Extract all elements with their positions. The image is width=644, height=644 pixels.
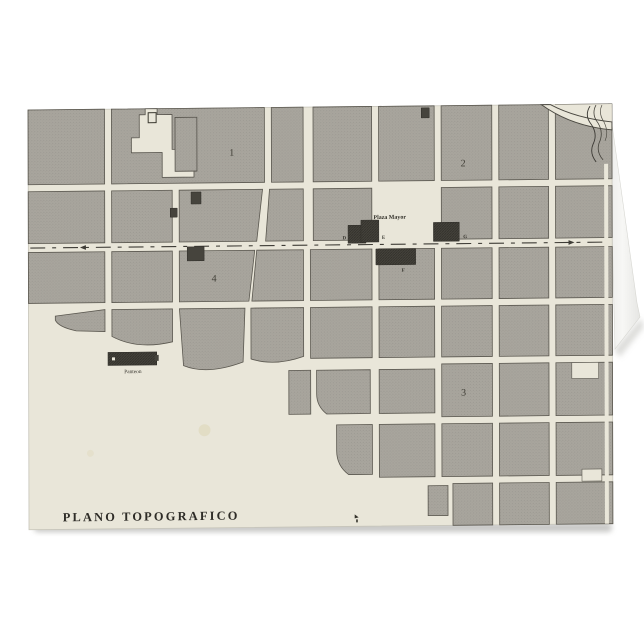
building-f <box>376 249 416 265</box>
church-building <box>148 113 156 123</box>
building-letter-g: G <box>463 235 467 240</box>
building-letter-d: D <box>342 236 346 241</box>
district-number-2: 2 <box>461 158 466 169</box>
block-notch <box>582 469 602 481</box>
building-letter-f: F <box>402 269 405 274</box>
plaza-mayor-label: Plaza Mayor <box>373 215 406 221</box>
building-g <box>433 222 459 241</box>
district-number-4: 4 <box>212 274 217 285</box>
map-title: PLANO TOPOGRAFICO <box>63 509 240 525</box>
panteon-label: Panteon <box>124 369 142 375</box>
panteon-building <box>108 352 157 365</box>
district-number-3: 3 <box>461 388 466 399</box>
greeting-card-mockup: Plaza Mayor Panteon D E F G 1 2 3 4 PLAN… <box>0 0 644 644</box>
product-mockup-stage: Plaza Mayor Panteon D E F G 1 2 3 4 PLAN… <box>0 0 644 644</box>
district-number-1: 1 <box>229 148 234 159</box>
block-notch <box>572 362 599 378</box>
card-front-panel: Plaza Mayor Panteon D E F G 1 2 3 4 PLAN… <box>28 104 613 530</box>
building-e <box>361 220 379 242</box>
